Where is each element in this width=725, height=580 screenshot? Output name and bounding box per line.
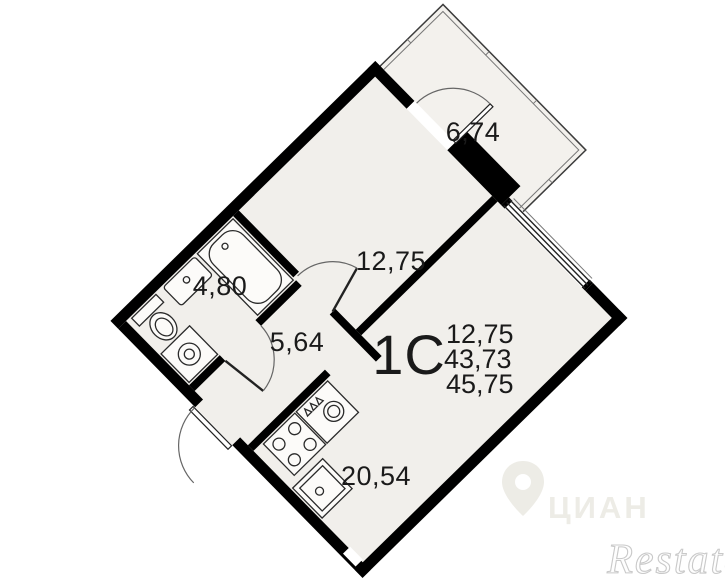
- cian-watermark-text: ЦИАН: [548, 490, 650, 525]
- cian-logo-pin-hole: [515, 474, 531, 490]
- cian-watermark: ЦИАН: [502, 461, 650, 525]
- hallway-area-label: 5,64: [270, 327, 325, 357]
- room-area-label: 12,75: [356, 246, 426, 276]
- summary-total-area: 45,75: [446, 369, 514, 399]
- floor-plan-svg: ЦИАН: [0, 0, 725, 580]
- restate-watermark-text: Restate: [606, 537, 725, 580]
- bathroom-area-label: 4,80: [193, 271, 248, 301]
- floor-plan-image: ЦИАН: [0, 0, 725, 580]
- balcony-area-label: 6,74: [446, 117, 501, 147]
- kitchen-living-area-label: 20,54: [341, 461, 411, 491]
- apartment-type-label: 1С: [372, 323, 446, 386]
